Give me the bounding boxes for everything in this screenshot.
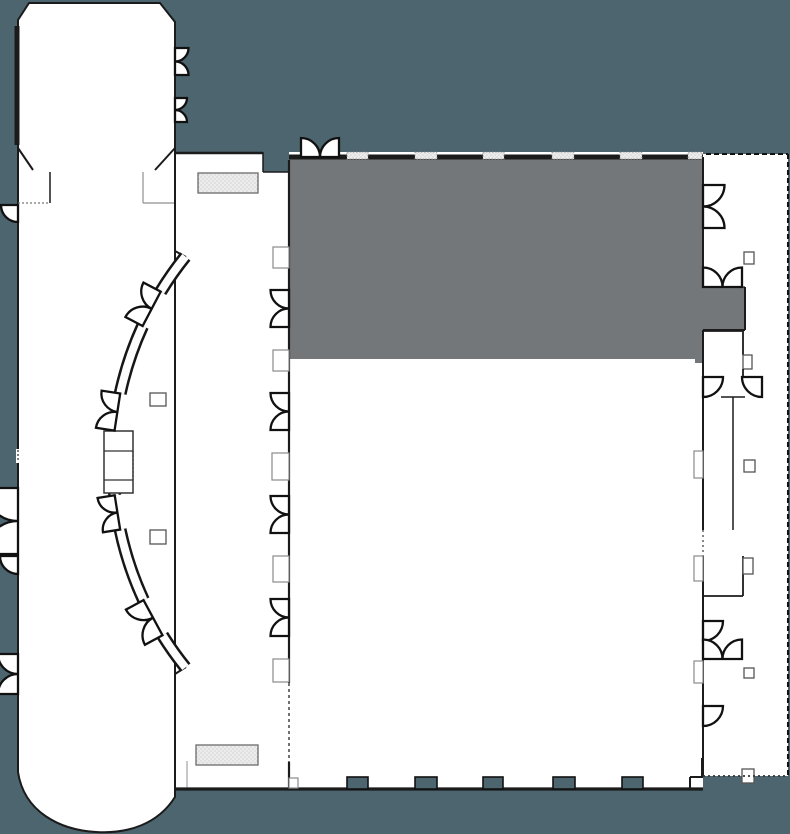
highlighted-hall-section[interactable]: [289, 159, 745, 359]
east-column-2: [744, 460, 755, 472]
west-auditorium-wing: [17, 3, 175, 832]
east-column-3: [743, 558, 753, 574]
control-booth: [104, 431, 133, 493]
entry-mat-top: [198, 173, 258, 193]
room-a-bump: [743, 355, 752, 369]
east-column-1: [744, 252, 754, 264]
bottom-corner-pilaster: [289, 778, 298, 788]
floor-plan-canvas: [0, 0, 790, 834]
entry-mat-bottom: [196, 745, 258, 765]
auditorium-column-2: [150, 530, 166, 544]
exterior-notch: [263, 152, 289, 172]
auditorium-column-1: [150, 393, 166, 406]
east-column-4: [744, 668, 754, 678]
highlight-pilaster: [695, 350, 703, 363]
wing-outline: [18, 3, 175, 832]
